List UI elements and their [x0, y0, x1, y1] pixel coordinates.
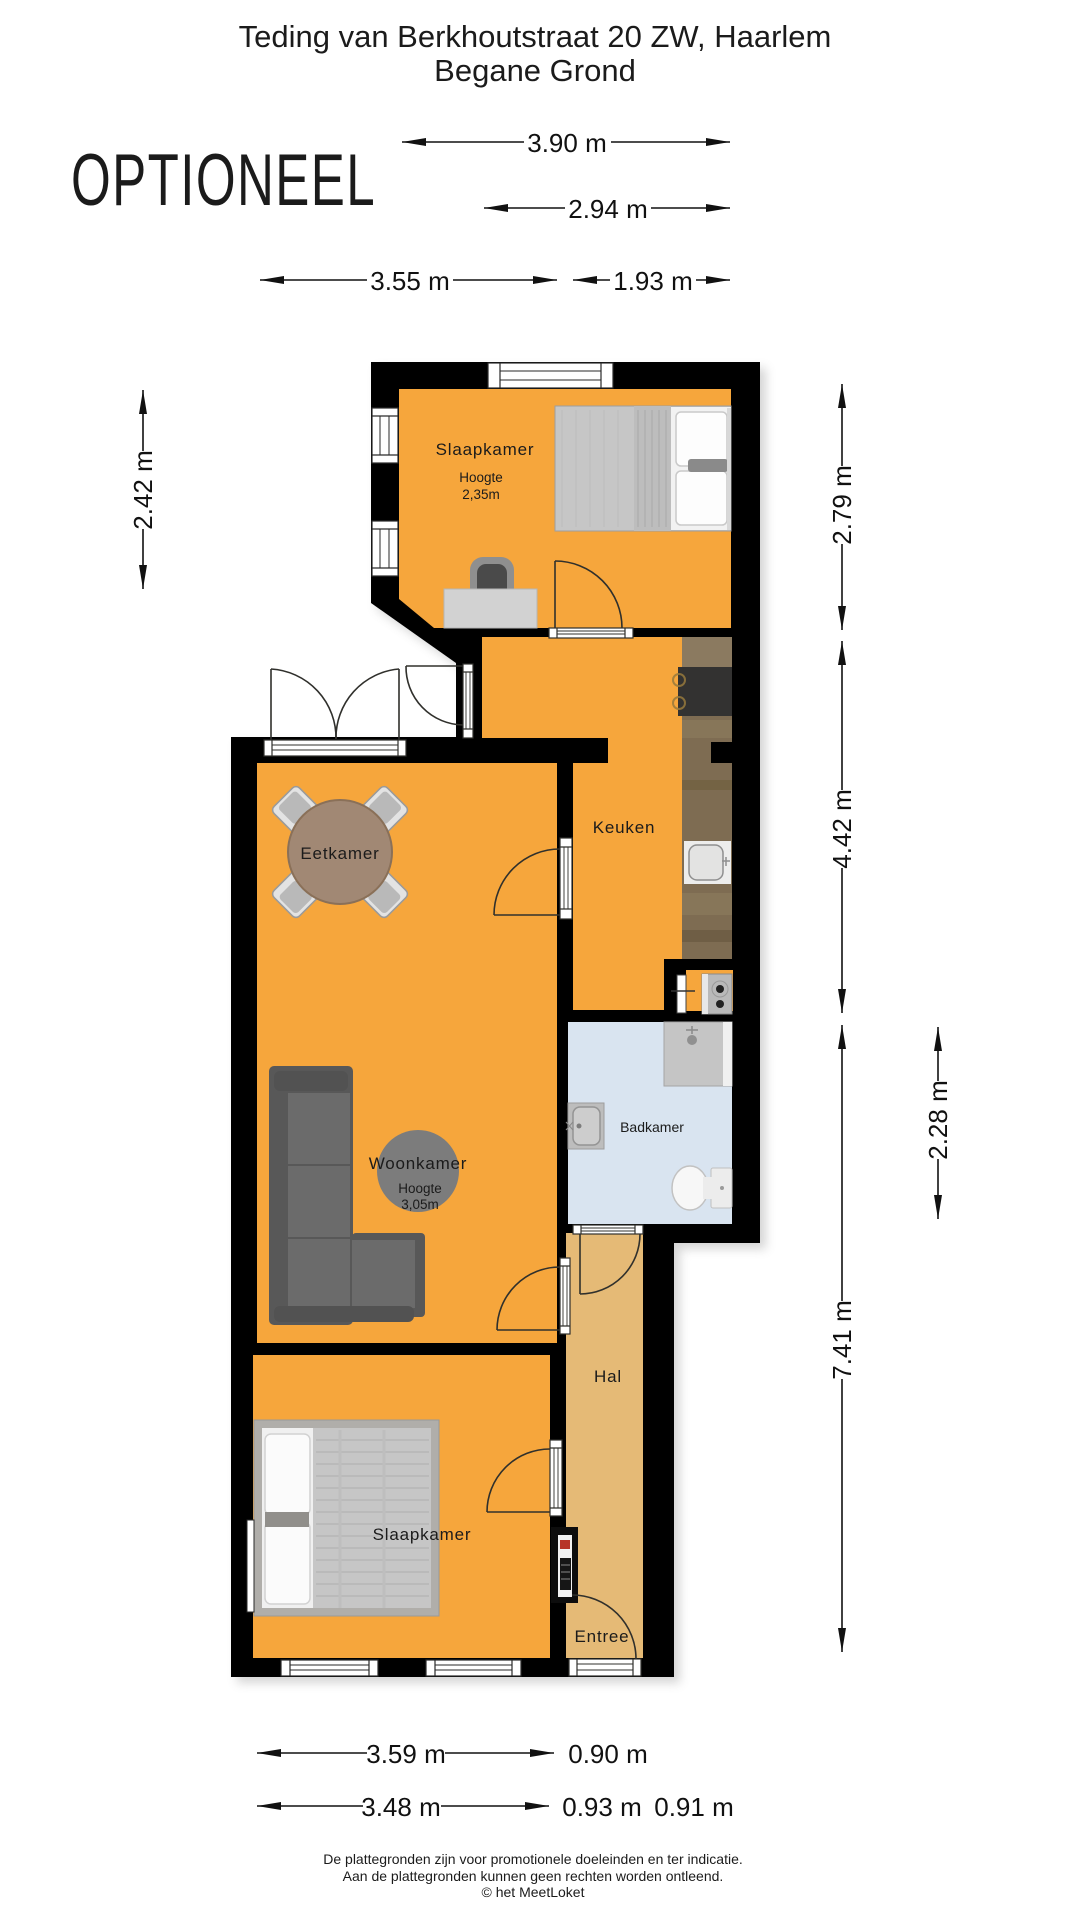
svg-text:Begane Grond: Begane Grond — [434, 53, 636, 88]
svg-text:2.94 m: 2.94 m — [568, 194, 648, 224]
svg-text:Entree: Entree — [575, 1627, 630, 1646]
svg-text:De plattegronden zijn voor pro: De plattegronden zijn voor promotionele … — [323, 1851, 743, 1867]
svg-text:© het MeetLoket: © het MeetLoket — [482, 1884, 585, 1900]
svg-text:Keuken: Keuken — [593, 818, 655, 837]
svg-text:Teding van Berkhoutstraat 20 Z: Teding van Berkhoutstraat 20 ZW, Haarlem — [239, 19, 832, 54]
svg-text:2.42 m: 2.42 m — [128, 450, 158, 530]
svg-text:3.48 m: 3.48 m — [361, 1792, 441, 1822]
svg-text:4.42 m: 4.42 m — [827, 789, 857, 869]
svg-text:Hal: Hal — [594, 1367, 622, 1386]
svg-text:7.41 m: 7.41 m — [827, 1300, 857, 1380]
svg-text:OPTIONEEL: OPTIONEEL — [71, 140, 376, 221]
svg-text:2.28 m: 2.28 m — [923, 1080, 953, 1160]
svg-text:Hoogte: Hoogte — [459, 470, 503, 485]
svg-text:Hoogte: Hoogte — [398, 1181, 442, 1196]
svg-text:Badkamer: Badkamer — [620, 1119, 684, 1135]
svg-text:3.59 m: 3.59 m — [366, 1739, 446, 1769]
svg-text:0.93 m: 0.93 m — [562, 1792, 642, 1822]
svg-text:Eetkamer: Eetkamer — [300, 844, 379, 863]
svg-text:2.79 m: 2.79 m — [827, 465, 857, 545]
svg-text:Aan de plattegronden kunnen ge: Aan de plattegronden kunnen geen rechten… — [343, 1868, 724, 1884]
svg-text:2,35m: 2,35m — [462, 487, 500, 502]
svg-text:0.91 m: 0.91 m — [654, 1792, 734, 1822]
svg-text:1.93 m: 1.93 m — [613, 266, 693, 296]
svg-text:3,05m: 3,05m — [401, 1197, 439, 1212]
svg-text:3.55 m: 3.55 m — [370, 266, 450, 296]
svg-text:Slaapkamer: Slaapkamer — [436, 440, 535, 459]
svg-text:3.90 m: 3.90 m — [527, 128, 607, 158]
svg-text:Slaapkamer: Slaapkamer — [373, 1525, 472, 1544]
svg-text:Woonkamer: Woonkamer — [369, 1154, 468, 1173]
svg-text:0.90 m: 0.90 m — [568, 1739, 648, 1769]
